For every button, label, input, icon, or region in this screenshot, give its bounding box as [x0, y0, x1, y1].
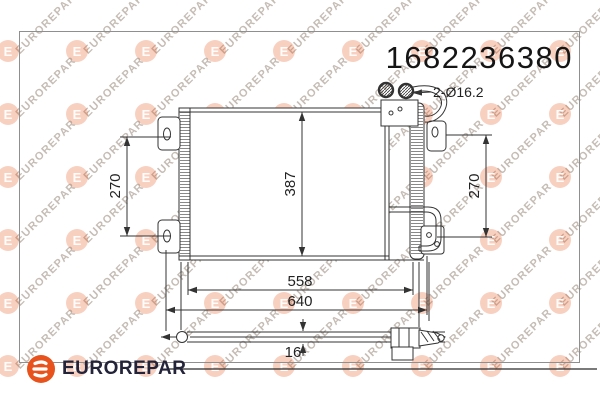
- left-bracket-upper: [158, 117, 180, 150]
- dim-right-height: 270: [466, 173, 483, 198]
- eurorepar-logo-icon: [26, 354, 56, 384]
- dim-left-height: 270: [107, 173, 124, 198]
- dim-inner-width: 558: [287, 273, 312, 290]
- port-icon: [399, 84, 413, 98]
- pipe-end-circle: [177, 332, 188, 343]
- right-bracket-upper: [427, 121, 446, 151]
- brand-footer: EUROREPAR: [26, 354, 187, 384]
- dim-core-height: 387: [282, 171, 299, 196]
- connection-ports: [379, 83, 413, 98]
- top-connection-plate: [381, 100, 418, 126]
- part-number: 1682236380: [386, 40, 573, 75]
- dim-outer-width: 640: [287, 293, 312, 310]
- technical-drawing: 1682236380: [0, 0, 600, 400]
- left-header-fins: [180, 112, 190, 256]
- ports-label: 2-Ø16.2: [433, 84, 484, 100]
- brand-name: EUROREPAR: [62, 358, 187, 380]
- dim-depth: 16: [285, 344, 302, 361]
- top-view-bracket: [391, 328, 445, 360]
- port-icon: [379, 83, 393, 97]
